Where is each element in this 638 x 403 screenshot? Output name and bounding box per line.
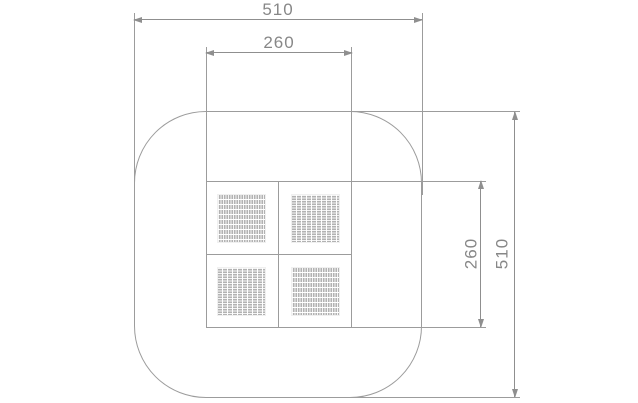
extension-line	[352, 181, 486, 182]
extension-line	[352, 327, 486, 328]
dimension-line-top-outer	[134, 19, 422, 20]
frame-divider-horizontal	[206, 254, 352, 255]
mat-panel-top-left	[218, 195, 265, 242]
arrowhead-down-icon	[512, 389, 518, 398]
extension-line	[206, 47, 207, 181]
extension-line	[345, 111, 520, 112]
mat-panel-bottom-right	[292, 268, 339, 315]
arrowhead-up-icon	[512, 111, 518, 120]
extension-line	[134, 13, 135, 193]
mat-panel-bottom-left	[218, 268, 265, 315]
extension-line	[330, 397, 520, 398]
extension-line	[422, 13, 423, 195]
dimension-label-right-outer: 510	[494, 224, 511, 284]
dimension-line-top-inner	[206, 52, 352, 53]
dimension-label-right-inner: 260	[463, 224, 480, 284]
arrowhead-down-icon	[478, 319, 484, 328]
dimension-label-top-outer: 510	[134, 1, 422, 18]
technical-drawing-canvas: 510 260 260 510	[0, 0, 638, 403]
dimension-line-right-outer	[514, 112, 515, 397]
extension-line	[351, 47, 352, 181]
dimension-label-top-inner: 260	[206, 34, 352, 51]
arrowhead-up-icon	[478, 180, 484, 189]
mat-panel-top-right	[292, 195, 339, 242]
